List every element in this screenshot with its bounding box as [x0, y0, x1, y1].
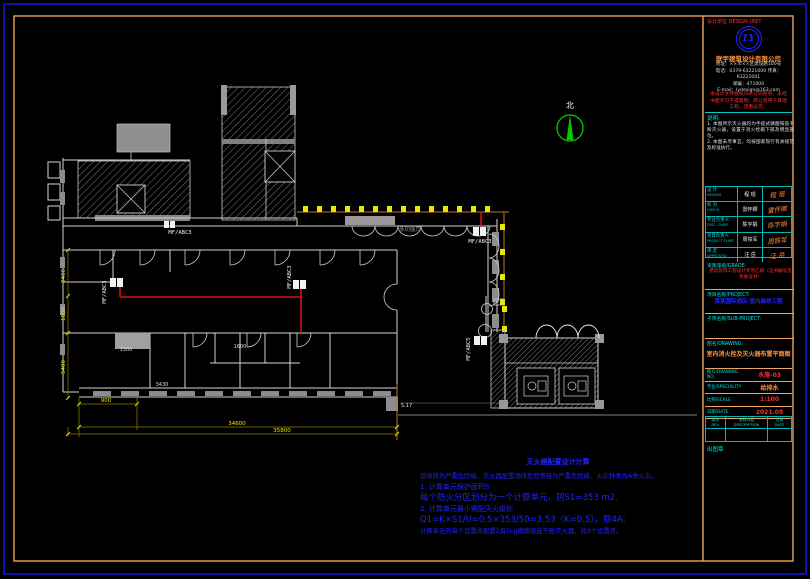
field-label: 专业/SPECIALITY: [705, 384, 747, 390]
address-line: 地址：××市××区建设路100号: [705, 62, 792, 69]
staff-role-en: CHECK: [707, 208, 736, 213]
rev-header: 日期DATE: [768, 417, 791, 429]
field-row: 比例/SCALE 1:100: [705, 394, 792, 407]
plan-texts: 多功能厅 3430 1500 1600 5.17: [120, 225, 422, 409]
revision-table: 版次REV. 修改内容DESCRIPTION 日期DATE: [705, 416, 792, 442]
note-line: 1. 本图所示灭火器均为手提式磷酸铵盐干粉灭火器，设置于消火栓箱下部及明显部位。: [707, 122, 794, 140]
door-swings: [100, 250, 397, 347]
extinguisher-symbols: [110, 221, 487, 345]
company-logo: LY: [736, 26, 762, 52]
dim-text: 1600: [234, 344, 247, 350]
extinguisher-label: MF/ABC3: [102, 280, 108, 303]
calc-line: Q1=K×S1/U=0.5×353/50=3.53（K=0.5），取4A;: [420, 515, 696, 526]
extinguisher-label: MF/ABC5: [466, 337, 472, 360]
staff-role-en: DISC. CHIEF: [707, 223, 736, 228]
dimension-lines: 900 34600 35800 2400 1800 5400: [61, 248, 399, 437]
staff-name: 周铁军: [738, 233, 763, 247]
calc-line: 1. 计算单元保护面积S: [420, 482, 696, 493]
calc-line: 每个防火分区划分为一个计算单元，则S1=353 m2.: [420, 493, 696, 504]
staff-name: 汪 岳: [738, 248, 763, 262]
divider: [705, 112, 792, 113]
calc-line: 该场所为严重危险级，灭火器配置场所危险等级为严重危险级，火灾种类为A类火灾。: [420, 471, 696, 482]
company-address: 地址：××市××区建设路100号 电话：0379-63221000 传真：632…: [705, 62, 792, 95]
field-value: 1:100: [747, 396, 792, 403]
dim-label: 34600: [228, 421, 246, 427]
calc-line: 2. 计算单元最小需配灭火级别: [420, 504, 696, 515]
field-label: 日期/DATE: [705, 409, 747, 415]
dim-label: 1800: [61, 307, 67, 321]
dim-label: 5400: [61, 360, 67, 374]
staff-name: 陈宇娟: [738, 217, 763, 231]
field-value: 水施-03: [747, 370, 792, 379]
subproject-label: 子项名称/SUB-PROJECT:: [705, 313, 794, 322]
dim-label: 2400: [61, 269, 67, 283]
curtain-wall-windows: [352, 226, 499, 306]
extinguisher-label: MF/ABC3: [168, 230, 191, 236]
drawing-fields: 图号/DRAWING NO. 水施-03 专业/SPECIALITY 给排水 比…: [705, 368, 792, 419]
rev-header: 修改内容DESCRIPTION: [726, 417, 768, 429]
title-block: 设计单位 DESIGN UNIT LY 联宇建筑设计有限公司 地址：××市××区…: [705, 16, 792, 561]
extinguisher-label: MF/ABC3: [287, 265, 293, 288]
notes-label: 说明:: [705, 114, 794, 122]
room-label: 多功能厅: [399, 225, 422, 233]
dim-text: 1500: [120, 347, 133, 353]
address-line: 电话：0379-63221000 传真：63221001: [705, 69, 792, 82]
calc-title: 灭火器配置设计计算: [420, 457, 696, 467]
north-needle: [567, 115, 574, 140]
staff-role-en: PROJECT CHIEF: [707, 239, 736, 244]
field-value: 2021.08: [747, 409, 792, 416]
calculation-notes: 灭火器配置设计计算 该场所为严重危险级，灭火器配置场所危险等级为严重危险级，火灾…: [420, 457, 696, 537]
design-unit-label: 设计单位 DESIGN UNIT: [705, 18, 794, 25]
staff-name: 雷怀卿: [738, 202, 763, 216]
staff-row: 校 对CHECK 雷怀卿 雷怀卿: [706, 202, 791, 217]
copyright-line: 本设计文件版权归本公司所有，未经: [705, 92, 792, 99]
note-line: 2. 本图未尽事宜，均按国家现行有关规范及标准执行。: [707, 140, 794, 152]
staff-table: 设 计DESIGN 程 琨 程 琨 校 对CHECK 雷怀卿 雷怀卿 专业负责人…: [705, 186, 792, 258]
extinguisher-label: MF/ABC3: [468, 239, 491, 245]
rev-header: 版次REV.: [706, 417, 726, 429]
field-label: 比例/SCALE: [705, 397, 747, 403]
project-name: 某某国际酒店·室内装修工程: [705, 297, 792, 305]
field-label: 图号/DRAWING NO.: [705, 369, 747, 380]
north-arrow: 北: [557, 101, 583, 141]
staff-signature: 汪 岳: [762, 246, 792, 263]
drawing-title: 室内消火栓及灭火器布置平面图: [705, 349, 792, 358]
staff-role: 项目负责人: [707, 234, 729, 239]
logo-text: LY: [739, 29, 759, 49]
seal-label: 出图章: [705, 445, 794, 453]
staff-row: 设 计DESIGN 程 琨 程 琨: [706, 187, 791, 202]
window-symbols: [303, 206, 507, 332]
drawing-label: 图名/DRAWING:: [705, 338, 794, 347]
staff-row: 项目负责人PROJECT CHIEF 周铁军 周铁军: [706, 233, 791, 248]
general-notes: 1. 本图所示灭火器均为手提式磷酸铵盐干粉灭火器，设置于消火栓箱下部及明显部位。…: [705, 122, 796, 152]
dim-label: 900: [101, 398, 112, 404]
staff-row: 专业负责人DISC. CHIEF 陈宇娟 陈宇娟: [706, 217, 791, 232]
level-text: 5.17: [401, 403, 412, 409]
rev-empty-row: [706, 429, 791, 441]
staff-row: 审 定APPROVED 汪 岳 汪 岳: [706, 248, 791, 262]
grade-label: 资质等级/GRADE:: [705, 262, 794, 269]
field-row: 专业/SPECIALITY 给排水: [705, 382, 792, 395]
field-row: 图号/DRAWING NO. 水施-03: [705, 369, 792, 382]
copyright-line: 工程，违者必究。: [705, 105, 792, 112]
staff-role-en: DESIGN: [707, 193, 736, 198]
staff-role-en: APPROVED: [707, 254, 736, 259]
stair-landing: [117, 124, 170, 152]
staff-name: 程 琨: [738, 187, 763, 201]
north-label: 北: [566, 101, 574, 110]
field-value: 给排水: [747, 383, 792, 392]
grade-value: 建筑装饰工程设计专项乙级（证书编号见资质证书）: [705, 269, 796, 280]
building-cores: [78, 85, 296, 221]
dim-label: 35800: [273, 428, 291, 434]
copyright-notice: 本设计文件版权归本公司所有，未经 书面许可不得复制、转让或用于其他 工程，违者必…: [705, 92, 792, 112]
dim-text: 3430: [156, 382, 169, 388]
calc-line: 计算单元内每个设置点配置2具5kg磷酸铵盐干粉灭火器，共3个设置点。: [420, 526, 696, 537]
cad-sheet: MF/ABC3 MF/ABC3 MF/ABC3 MF/ABC5 MF/ABC3 …: [0, 0, 810, 579]
